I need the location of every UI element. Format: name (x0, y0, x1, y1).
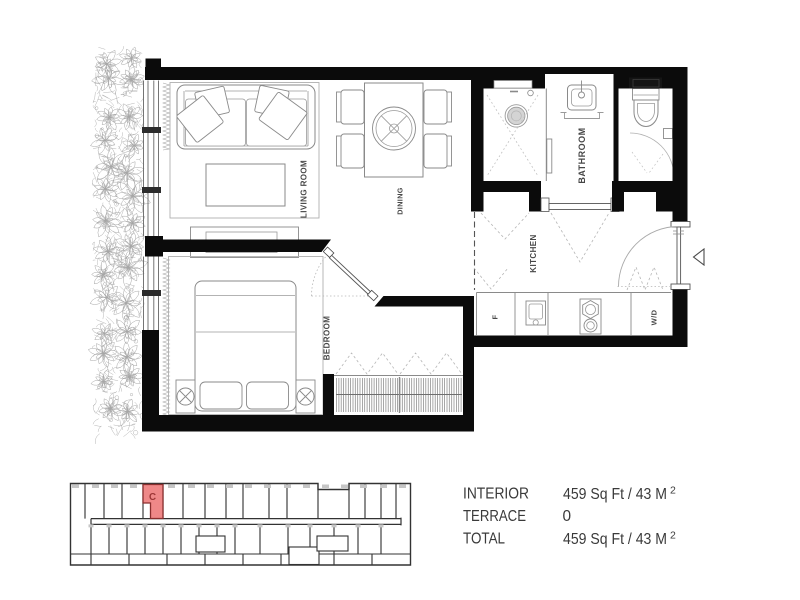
svg-text:BATHROOM: BATHROOM (577, 127, 587, 183)
svg-text:INTERIOR: INTERIOR (463, 486, 529, 503)
svg-text:TOTAL: TOTAL (463, 531, 505, 548)
svg-text:DINING: DINING (396, 187, 405, 215)
svg-text:F: F (491, 314, 500, 319)
svg-text:2: 2 (670, 530, 676, 542)
svg-text:LIVING ROOM: LIVING ROOM (300, 160, 309, 218)
svg-text:TERRACE: TERRACE (463, 508, 526, 525)
svg-text:2: 2 (670, 485, 676, 497)
svg-text:BEDROOM: BEDROOM (323, 316, 332, 361)
svg-text:459 Sq Ft / 43 M: 459 Sq Ft / 43 M (563, 531, 667, 548)
svg-text:W/D: W/D (650, 309, 659, 325)
svg-text:459 Sq Ft / 43 M: 459 Sq Ft / 43 M (563, 486, 667, 503)
svg-text:C: C (149, 492, 156, 503)
svg-text:KITCHEN: KITCHEN (529, 234, 538, 272)
svg-text:0: 0 (563, 508, 572, 525)
